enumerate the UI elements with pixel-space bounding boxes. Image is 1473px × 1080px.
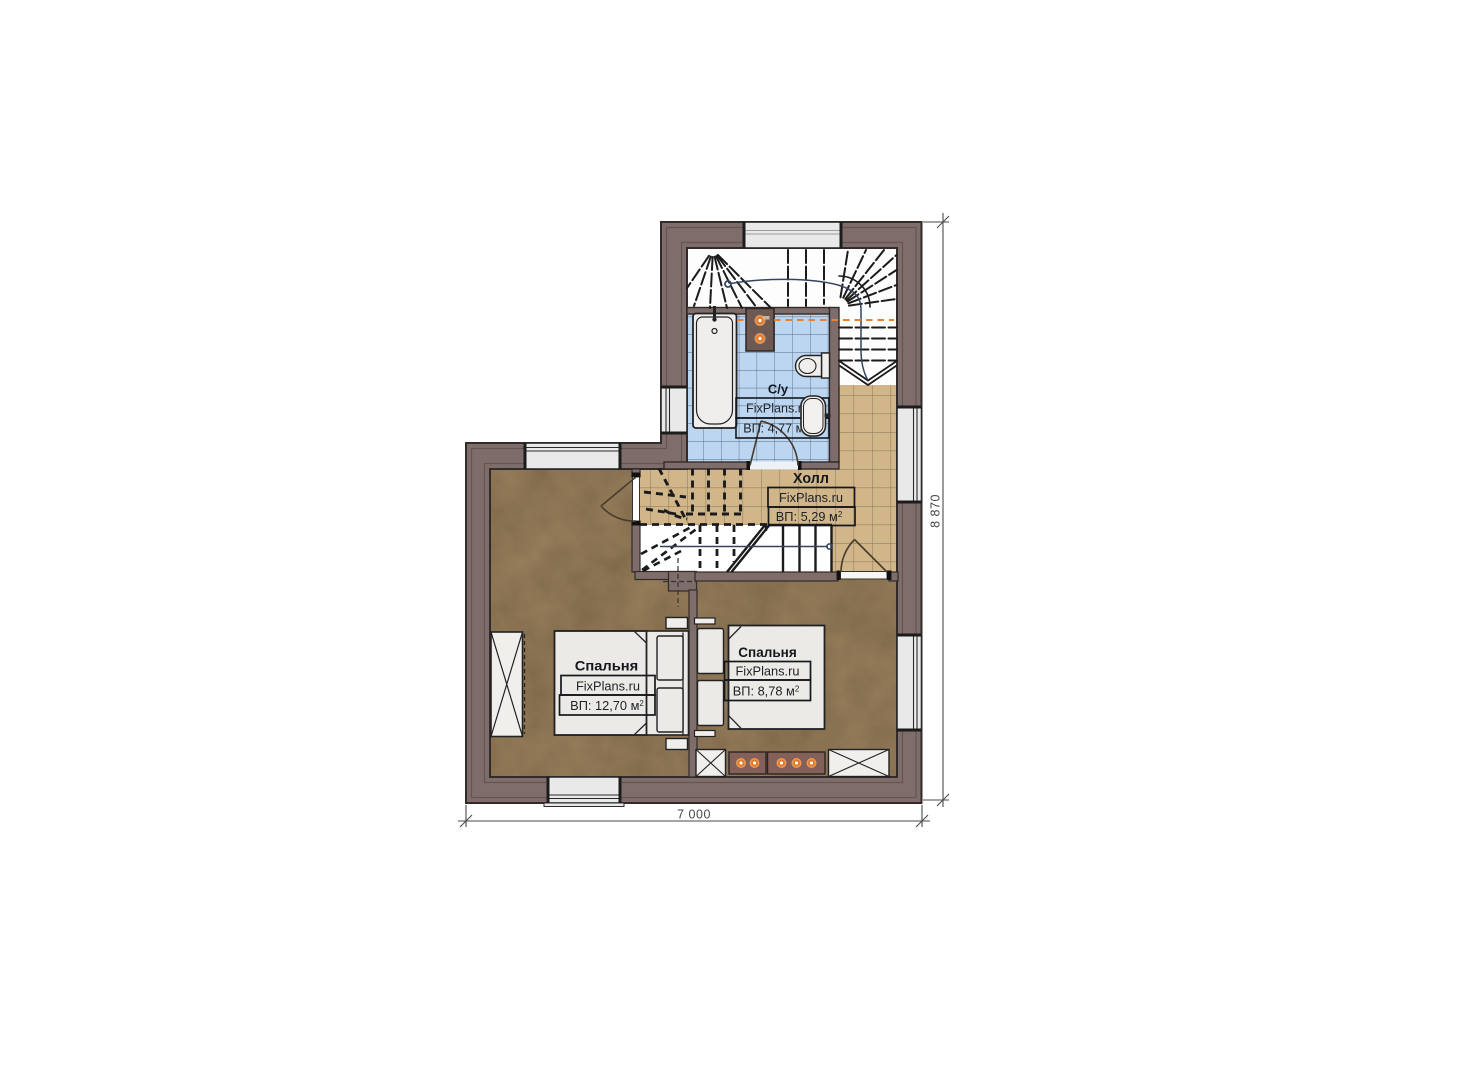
svg-text:ВП: 12,70 м2: ВП: 12,70 м2	[570, 698, 644, 713]
svg-text:FixPlans.ru: FixPlans.ru	[779, 490, 843, 505]
svg-text:Спальня: Спальня	[575, 659, 639, 674]
svg-text:FixPlans.ru: FixPlans.ru	[576, 678, 640, 693]
svg-text:ВП: 8,78 м2: ВП: 8,78 м2	[733, 684, 800, 699]
svg-text:ВП: 5,29 м2: ВП: 5,29 м2	[776, 509, 843, 524]
svg-text:FixPlans.ru: FixPlans.ru	[746, 402, 809, 416]
svg-text:8 870: 8 870	[929, 494, 943, 528]
svg-text:С/у: С/у	[768, 382, 789, 397]
svg-text:Холл: Холл	[793, 471, 829, 487]
svg-text:Спальня: Спальня	[738, 645, 797, 660]
svg-text:FixPlans.ru: FixPlans.ru	[735, 664, 799, 679]
svg-text:ВП: 4,77 м2: ВП: 4,77 м2	[743, 422, 809, 436]
svg-text:7 000: 7 000	[677, 808, 711, 822]
